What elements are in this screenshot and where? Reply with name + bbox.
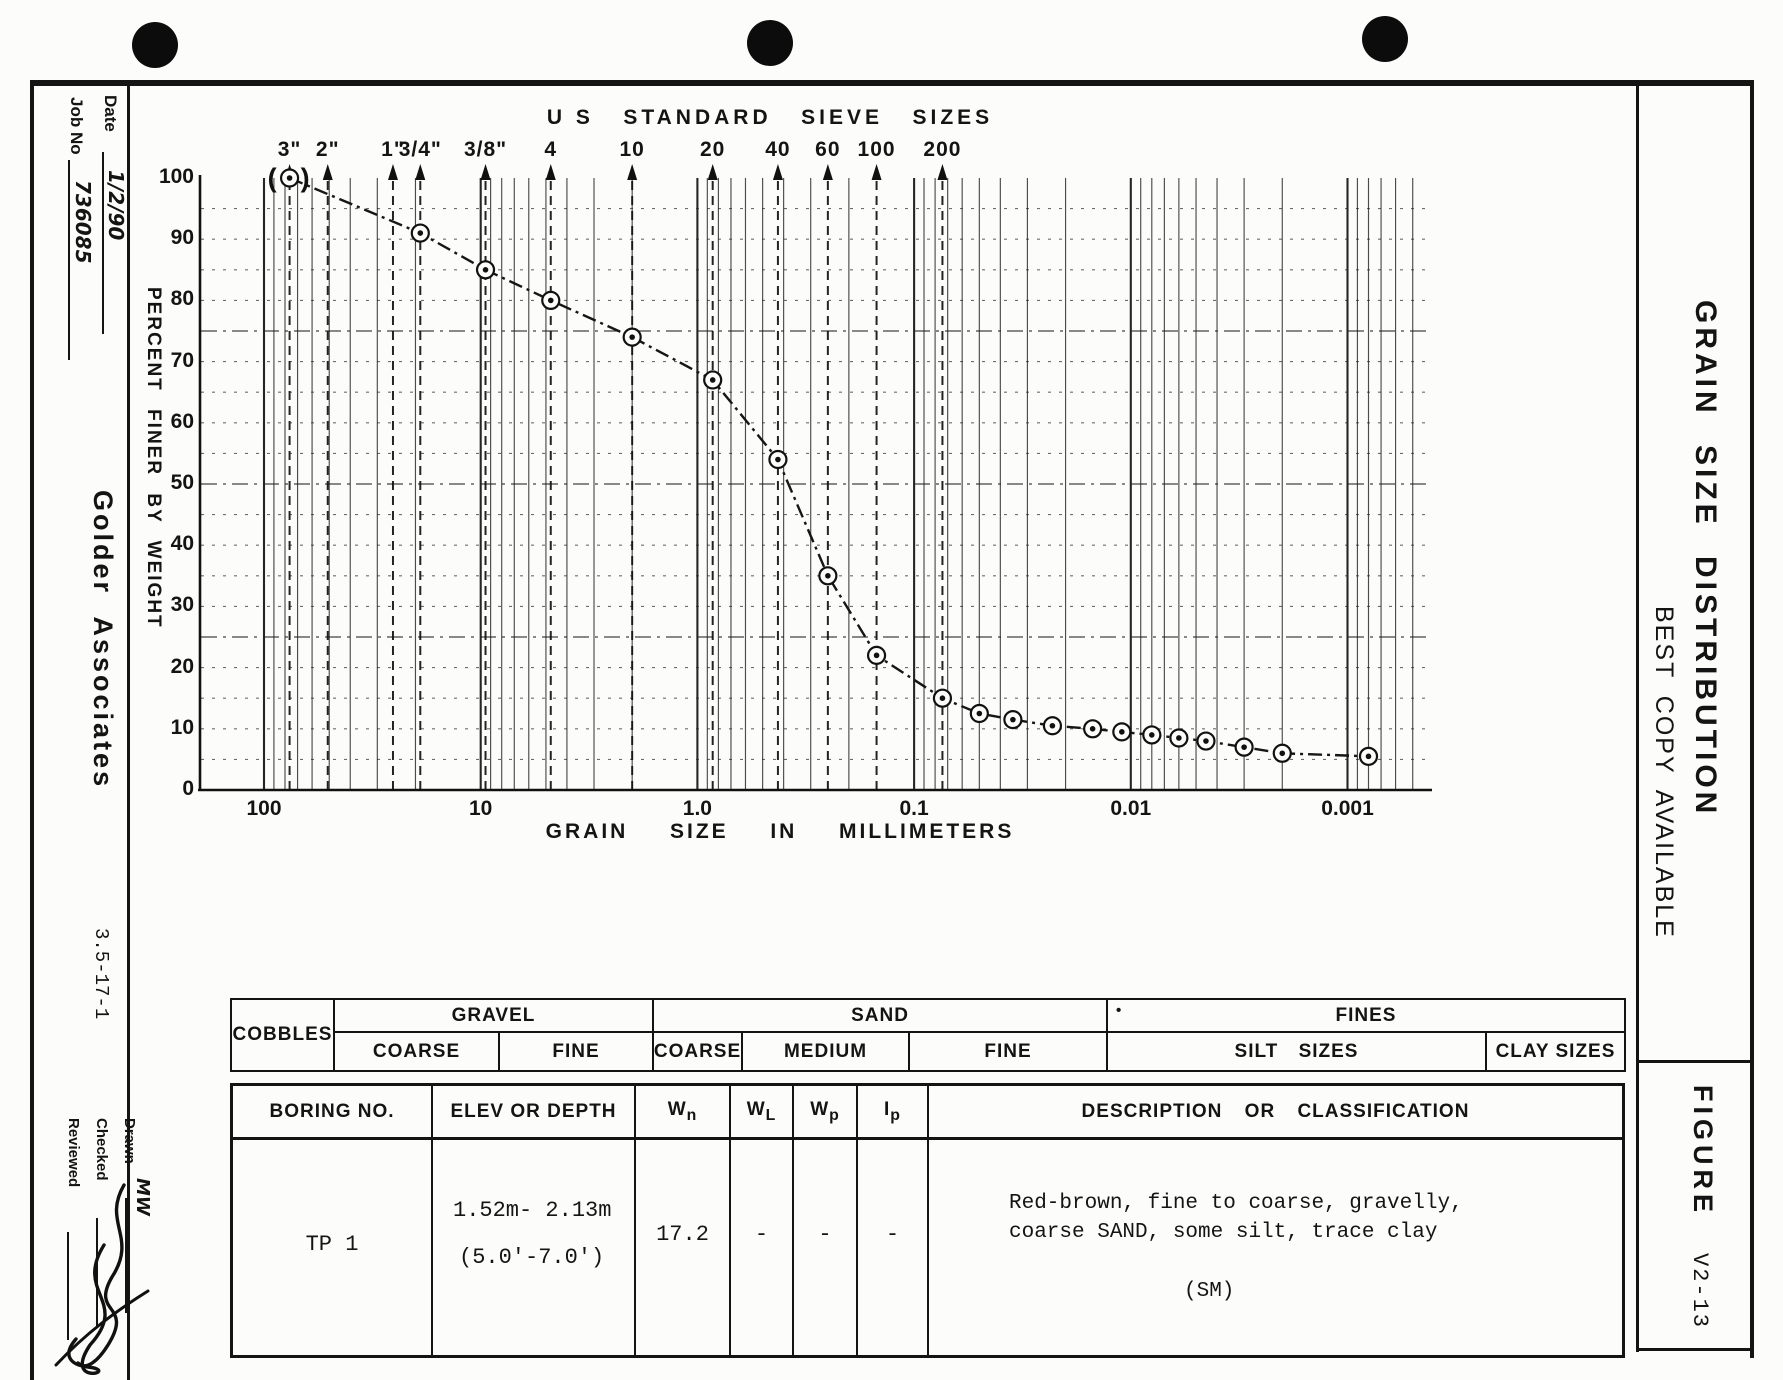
classification-gravel: GRAVEL COARSE FINE <box>333 1000 652 1070</box>
ip-value: - <box>858 1222 927 1247</box>
cell-description: Red-brown, fine to coarse, gravelly, coa… <box>929 1140 1622 1355</box>
depth-metric-value: 1.52m- 2.13m <box>453 1198 634 1223</box>
cell-wp: - <box>794 1140 858 1355</box>
boring-no-value: TP 1 <box>233 1232 431 1257</box>
sieve-arrow-icon <box>773 164 783 180</box>
header-wp: Wp <box>794 1086 858 1140</box>
classification-fines: • FINES SILT SIZES CLAY SIZES <box>1106 1000 1624 1070</box>
data-point-dot <box>775 457 781 463</box>
cell-wl: - <box>731 1140 794 1355</box>
stray-mark: • <box>1116 1002 1122 1019</box>
estimated-point-paren-open: ( <box>268 163 277 193</box>
figure-label: FIGURE <box>1687 1085 1718 1217</box>
sieve-arrow-icon <box>546 164 556 180</box>
cell-wn: 17.2 <box>636 1140 731 1355</box>
data-point-dot <box>1119 729 1125 735</box>
wn-value: 17.2 <box>636 1222 729 1247</box>
wl-value: - <box>731 1222 792 1247</box>
data-point-dot <box>825 573 831 579</box>
sample-table: BORING NO. ELEV OR DEPTH Wn WL Wp Ip DES… <box>230 1083 1625 1358</box>
sand-medium-label: MEDIUM <box>784 1041 867 1063</box>
sieve-arrow-icon <box>937 164 947 180</box>
sieve-arrow-icon <box>823 164 833 180</box>
fines-label: FINES <box>1336 1005 1397 1027</box>
y-axis-title: PERCENT FINER BY WEIGHT <box>142 287 164 629</box>
data-point-dot <box>1176 735 1182 741</box>
sieve-arrow-icon <box>872 164 882 180</box>
classification-symbol: (SM) <box>1184 1280 1234 1303</box>
silt-sizes-label: SILT SIZES <box>1235 1041 1359 1063</box>
header-wn: Wn <box>636 1086 731 1140</box>
data-point-dot <box>1050 723 1056 729</box>
document-page: Date 1/2/90 Job No 736085 Golder Associa… <box>0 0 1783 1380</box>
header-boring-no: BORING NO. <box>233 1086 433 1140</box>
header-description: DESCRIPTION OR CLASSIFICATION <box>929 1086 1622 1140</box>
figure-number: V2-13 <box>1687 1253 1712 1329</box>
sieve-arrow-icon <box>481 164 491 180</box>
data-point-dot <box>417 230 423 236</box>
sand-coarse-label: COARSE <box>654 1041 741 1063</box>
data-point-dot <box>483 267 489 273</box>
header-ip: Ip <box>858 1086 929 1140</box>
wp-value: - <box>794 1222 856 1247</box>
depth-imperial-value: (5.0'-7.0') <box>459 1245 634 1270</box>
data-point-dot <box>1149 732 1155 738</box>
sieve-arrow-icon <box>323 164 333 180</box>
data-point-dot <box>629 334 635 340</box>
header-elev-or-depth: ELEV OR DEPTH <box>433 1086 636 1140</box>
sieve-arrow-icon <box>388 164 398 180</box>
sieve-arrow-icon <box>627 164 637 180</box>
header-wl: WL <box>731 1086 794 1140</box>
data-point-dot <box>1203 738 1209 744</box>
data-point-dot <box>940 695 946 701</box>
data-point-dot <box>874 653 880 659</box>
gravel-fine-label: FINE <box>552 1041 599 1063</box>
chart-title: U S STANDARD SIEVE SIZES <box>547 106 993 130</box>
classification-bar: COBBLES GRAVEL COARSE FINE SAND COARSE M… <box>230 998 1626 1072</box>
data-point-dot <box>287 175 293 181</box>
cell-boring-no: TP 1 <box>233 1140 433 1355</box>
classification-sand: SAND COARSE MEDIUM FINE <box>652 1000 1106 1070</box>
clay-sizes-label: CLAY SIZES <box>1496 1041 1616 1063</box>
cobbles-label: COBBLES <box>233 1024 333 1046</box>
figure-title: GRAIN SIZE DISTRIBUTION <box>1688 300 1722 817</box>
description-line2: coarse SAND, some silt, trace clay <box>1009 1221 1622 1244</box>
sand-label: SAND <box>851 1005 909 1027</box>
cell-elev-depth: 1.52m- 2.13m (5.0'-7.0') <box>433 1140 636 1355</box>
gradation-curve <box>290 178 1369 756</box>
cell-ip: - <box>858 1140 929 1355</box>
data-point-dot <box>548 298 554 304</box>
data-point-dot <box>977 711 983 717</box>
estimated-point-paren-close: ) <box>301 163 310 193</box>
data-point-dot <box>1279 750 1285 756</box>
gravel-label: GRAVEL <box>452 1005 536 1027</box>
description-line1: Red-brown, fine to coarse, gravelly, <box>1009 1192 1622 1215</box>
data-point-dot <box>1010 717 1016 723</box>
data-point-dot <box>710 377 716 383</box>
data-point-dot <box>1090 726 1096 732</box>
sand-fine-label: FINE <box>984 1041 1031 1063</box>
x-axis-title: GRAIN SIZE IN MILLIMETERS <box>546 820 1015 844</box>
gravel-coarse-label: COARSE <box>373 1041 460 1063</box>
classification-cobbles: COBBLES <box>232 1000 333 1070</box>
best-copy-stamp: BEST COPY AVAILABLE <box>1649 606 1678 939</box>
sieve-arrow-icon <box>415 164 425 180</box>
data-point-dot <box>1241 744 1247 750</box>
data-point-dot <box>1366 754 1372 760</box>
sieve-arrow-icon <box>708 164 718 180</box>
